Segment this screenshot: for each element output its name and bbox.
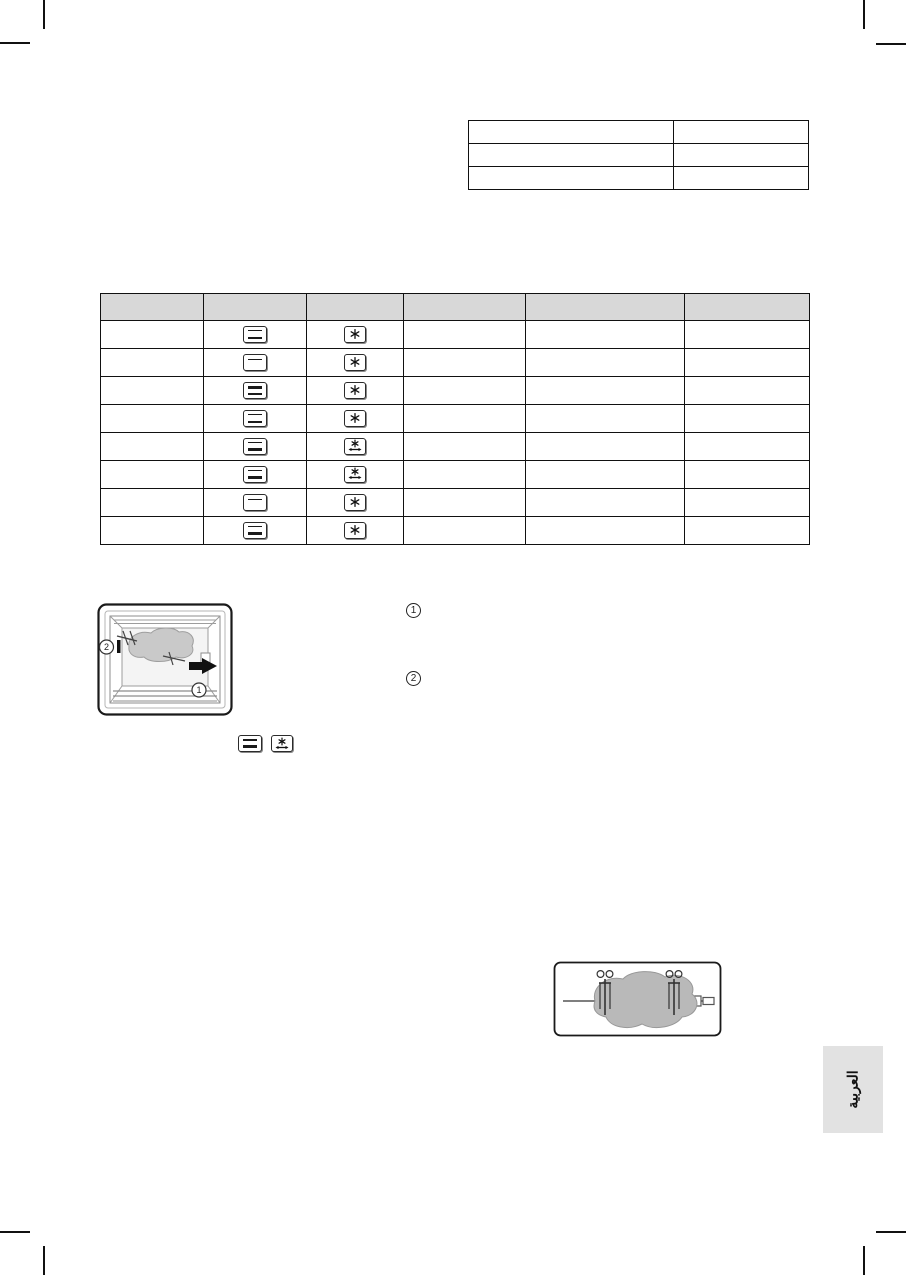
mode-cell (685, 349, 810, 377)
crop-mark-top-right-v (863, 0, 865, 29)
mode-cell (526, 377, 685, 405)
oven-heat-mode-icon-heat-thick-top-bottom (243, 382, 267, 399)
mode-table-row (101, 405, 810, 433)
mode-cell (526, 433, 685, 461)
mode-cell (404, 377, 526, 405)
fan-icon (344, 326, 366, 343)
manual-page: 2 1 1 2 العربي (0, 0, 906, 1275)
fan-icon (344, 410, 366, 427)
mode-table-row (101, 517, 810, 545)
oven-heat-mode-icon-heat-top-bottom (243, 326, 267, 343)
mode-cell (685, 461, 810, 489)
spec-table-row (469, 144, 809, 167)
mode-cell (685, 377, 810, 405)
fan-icon (344, 494, 366, 511)
mode-cell (101, 489, 204, 517)
spit-handle-mark (117, 640, 121, 653)
oven-heat-mode-icon-heat-top-bottom-thick (243, 522, 267, 539)
language-tab-label: العربية (844, 1070, 861, 1108)
mode-cell-heater (204, 433, 307, 461)
mode-cell (404, 349, 526, 377)
crop-mark-bottom-right-h (876, 1231, 906, 1233)
mode-cell-fan (307, 377, 404, 405)
fan-icon (344, 382, 366, 399)
mode-table-row (101, 461, 810, 489)
callout-2: 2 (406, 671, 421, 686)
mode-cell (526, 461, 685, 489)
mode-cell-heater (204, 321, 307, 349)
mode-cell (526, 489, 685, 517)
inline-mode-icons (238, 735, 293, 752)
mode-cell (404, 517, 526, 545)
mode-cell-fan (307, 405, 404, 433)
mode-cell (101, 517, 204, 545)
oven-heat-mode-icon-heat-top-bottom (243, 410, 267, 427)
mode-cell (404, 405, 526, 433)
cooking-mode-table (100, 293, 810, 545)
mode-cell-fan (307, 349, 404, 377)
mode-table-row (101, 377, 810, 405)
mode-cell (685, 433, 810, 461)
fan-rotisserie-icon (271, 735, 293, 752)
mode-table-header-row (101, 294, 810, 321)
mode-cell (685, 517, 810, 545)
mode-cell-fan (307, 489, 404, 517)
mode-table-row (101, 433, 810, 461)
mode-cell (526, 405, 685, 433)
mode-cell (101, 377, 204, 405)
mode-cell-heater (204, 489, 307, 517)
mode-cell (101, 321, 204, 349)
spec-table-row (469, 121, 809, 144)
crop-mark-bottom-left-h (0, 1231, 30, 1233)
mode-cell-fan (307, 517, 404, 545)
oven-heat-mode-icon-heat-top (243, 494, 267, 511)
oven-cavity-figure: 2 1 (97, 603, 233, 721)
mode-cell (101, 433, 204, 461)
mode-cell (685, 405, 810, 433)
mode-cell-fan (307, 321, 404, 349)
oven-heat-mode-icon-heat-top-bottom-thick (238, 735, 262, 752)
mode-table-row (101, 321, 810, 349)
mode-cell (101, 349, 204, 377)
fan-rotisserie-icon (344, 438, 366, 455)
oven-heat-mode-icon-heat-top-bottom-thick (243, 438, 267, 455)
crop-mark-top-left-h (0, 42, 30, 44)
crop-mark-top-left-v (43, 0, 45, 29)
mode-cell (526, 321, 685, 349)
mode-cell-heater (204, 461, 307, 489)
callout-1: 1 (406, 603, 421, 618)
mode-cell (526, 349, 685, 377)
figure-marker-2: 2 (104, 642, 109, 652)
oven-heat-mode-icon-heat-top (243, 354, 267, 371)
language-tab-arabic: العربية (823, 1046, 883, 1133)
mode-cell (685, 321, 810, 349)
mode-cell (404, 321, 526, 349)
mode-cell-heater (204, 517, 307, 545)
mode-cell (404, 461, 526, 489)
mode-cell (526, 517, 685, 545)
mode-cell-fan (307, 461, 404, 489)
meat-blob (129, 628, 193, 662)
mode-cell-heater (204, 377, 307, 405)
mode-cell-heater (204, 349, 307, 377)
oven-heat-mode-icon-heat-top-bottom-thick (243, 466, 267, 483)
fan-rotisserie-icon (344, 466, 366, 483)
crop-mark-bottom-right-v (863, 1246, 865, 1275)
rotisserie-spit-figure (553, 961, 722, 1042)
mode-cell (685, 489, 810, 517)
mode-cell (404, 489, 526, 517)
mode-cell (101, 405, 204, 433)
mode-cell (101, 461, 204, 489)
spec-table (468, 120, 809, 190)
mode-cell-fan (307, 433, 404, 461)
fan-icon (344, 354, 366, 371)
mode-cell (404, 433, 526, 461)
fan-icon (344, 522, 366, 539)
spec-table-row (469, 167, 809, 190)
mode-table-row (101, 489, 810, 517)
mode-table-row (101, 349, 810, 377)
mode-cell-heater (204, 405, 307, 433)
crop-mark-top-right-h (876, 43, 906, 45)
figure-marker-1: 1 (196, 685, 201, 695)
crop-mark-bottom-left-v (43, 1246, 45, 1275)
